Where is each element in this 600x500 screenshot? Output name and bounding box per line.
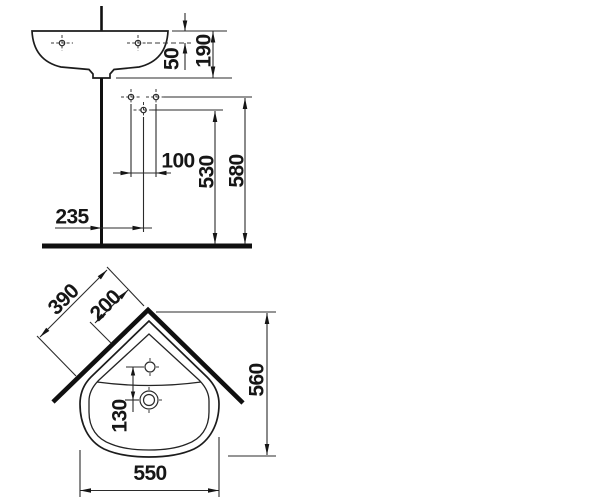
dim-label-50: 50 (160, 48, 183, 70)
drain-outlet (140, 387, 164, 413)
dim-label-560: 560 (245, 363, 268, 396)
dim-label-235: 235 (55, 205, 89, 228)
dim-arrow (243, 98, 248, 109)
corner-basin-technical-drawing: 50 190 100 235 530 (0, 0, 600, 500)
dim-arrow (243, 233, 248, 244)
side-elevation-view: 50 190 100 235 530 (32, 6, 252, 246)
dimension-waste-offset: 235 (55, 205, 152, 230)
drain-outer-icon (140, 391, 158, 409)
dim-arrow (213, 111, 218, 122)
tap-hole-marker-right (127, 35, 149, 51)
drain-inner-icon (144, 395, 155, 406)
dim-label-130: 130 (108, 399, 131, 432)
dim-arrow (133, 226, 144, 231)
dim-label-390: 390 (44, 280, 84, 320)
dim-label-580: 580 (225, 154, 248, 187)
dim-label-200: 200 (86, 286, 126, 326)
dimension-tap-to-waste: 130 (108, 367, 135, 433)
dim-arrow (183, 43, 188, 54)
dim-arrow (131, 367, 135, 376)
bowl-back-edge (97, 382, 201, 386)
dim-arrow (265, 444, 270, 455)
dimension-waste-height: 530 (195, 111, 218, 244)
dim-label-190: 190 (192, 34, 215, 67)
dim-arrow (213, 233, 218, 244)
technical-drawing-canvas: 50 190 100 235 530 (0, 0, 600, 500)
dim-arrow (131, 392, 135, 401)
dimension-width: 550 (80, 462, 219, 493)
tap-hole (145, 358, 161, 376)
supply-connection-marker-left (121, 89, 141, 105)
dim-label-100: 100 (161, 149, 194, 172)
dim-arrow (121, 171, 132, 176)
dimension-depth: 560 (245, 313, 269, 455)
dim-label-530: 530 (195, 155, 218, 188)
corner-wall-lines (53, 310, 243, 403)
plan-view: 390 200 560 130 550 (37, 267, 276, 497)
dimension-corner-offset: 200 (86, 286, 128, 326)
dimension-inlet-height: 580 (225, 98, 248, 244)
waste-connection-marker (134, 102, 154, 118)
dim-arrow (80, 488, 91, 493)
dimension-rim-to-tap-holes: 50 (160, 13, 187, 70)
dim-label-550: 550 (133, 462, 166, 485)
dimension-connection-spacing: 100 (113, 149, 195, 175)
dim-arrow (208, 488, 219, 493)
tap-hole-icon (145, 362, 155, 372)
supply-connection-marker-right (146, 89, 166, 105)
tap-hole-marker-left (51, 35, 73, 51)
dim-arrow (183, 21, 188, 32)
dim-arrow (265, 313, 270, 324)
basin-side-outline (32, 31, 168, 78)
ext-line-wall-edge (37, 336, 76, 376)
dim-arrow (91, 226, 102, 231)
dimension-basin-height: 190 (192, 31, 215, 78)
